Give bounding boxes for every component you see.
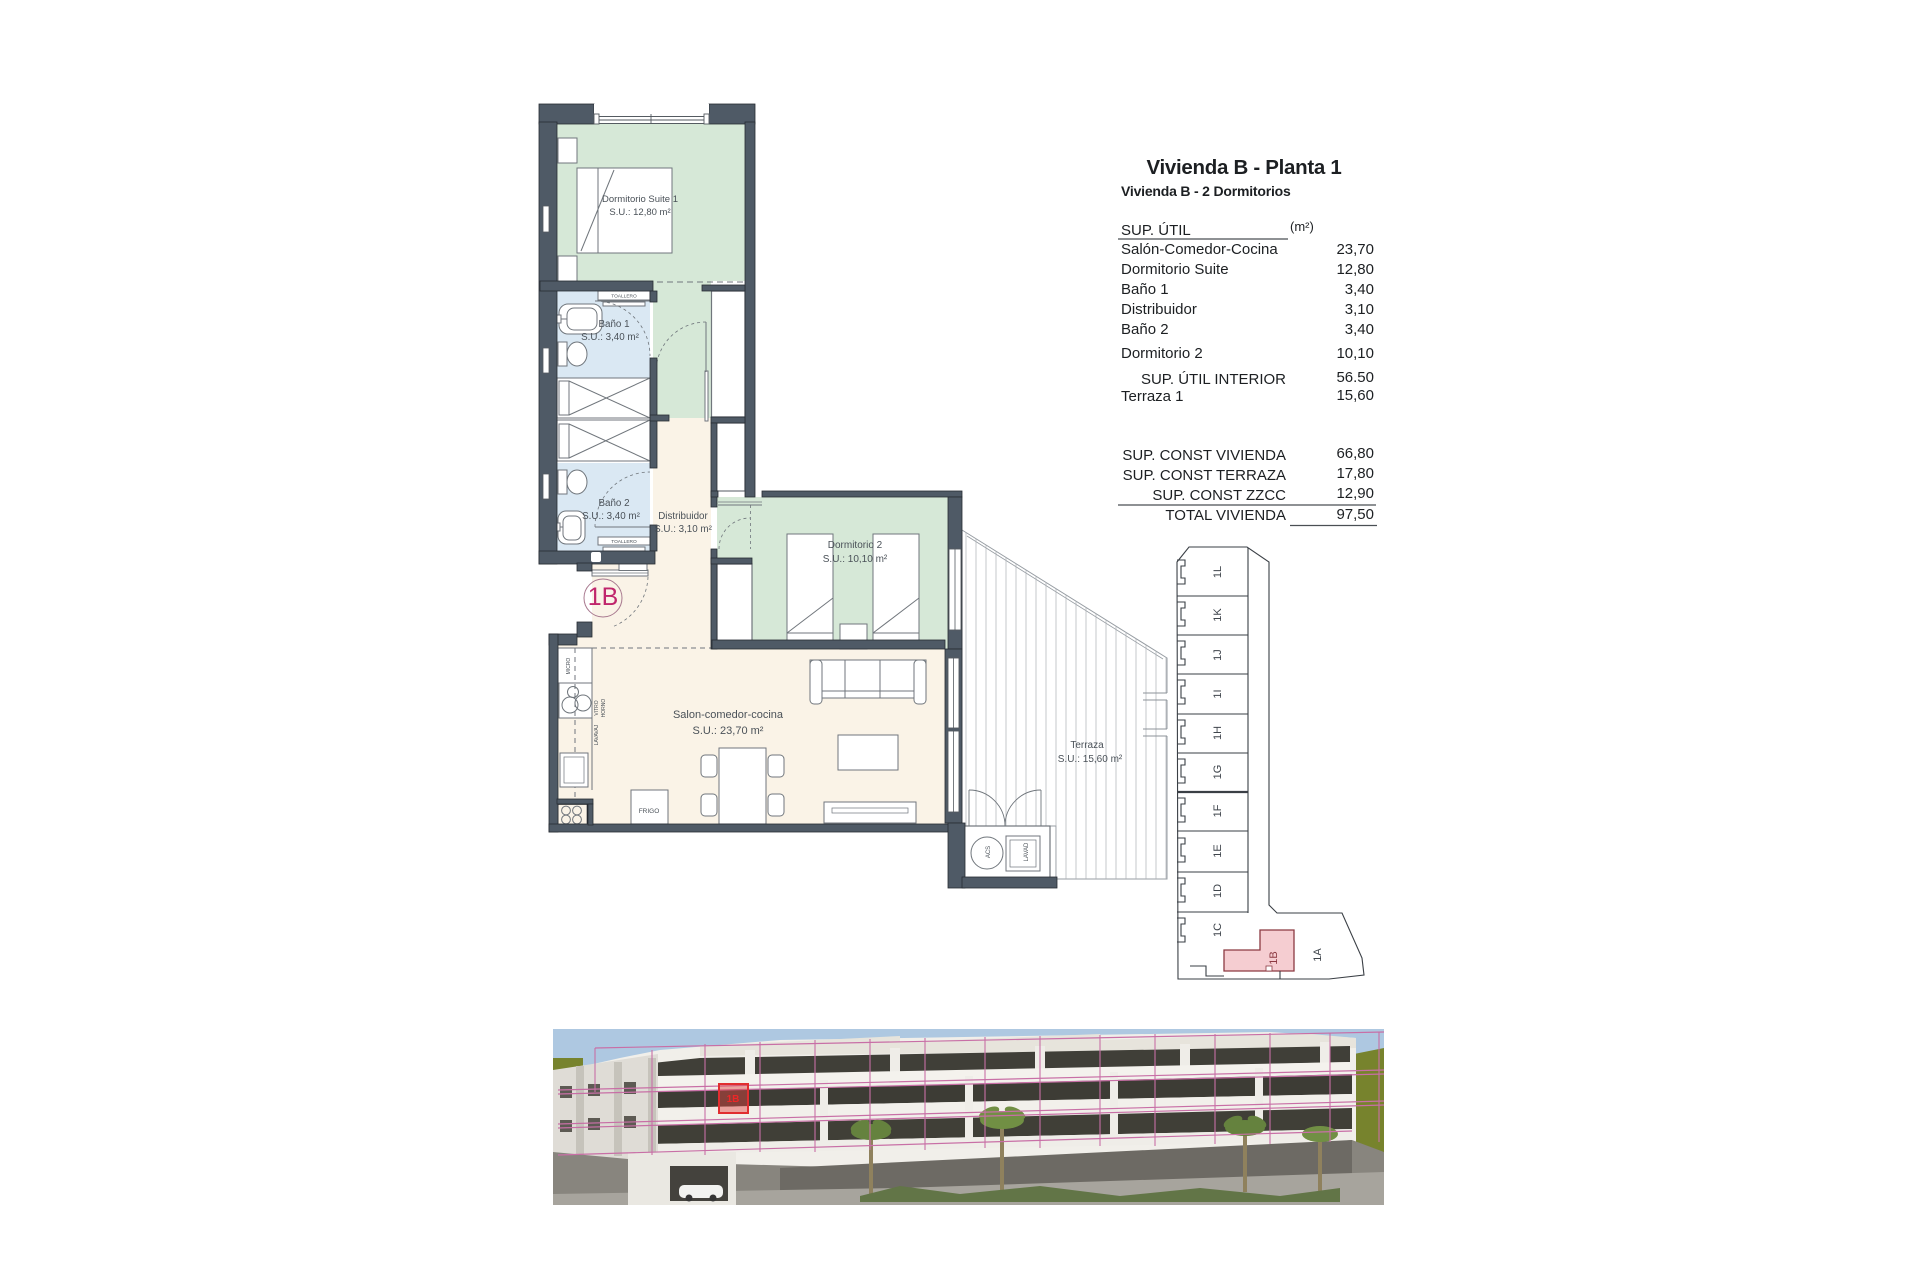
svg-text:Baño 2: Baño 2 [1121, 321, 1169, 338]
svg-text:Dormitorio Suite: Dormitorio Suite [1121, 261, 1229, 278]
svg-text:1L: 1L [1212, 566, 1224, 578]
svg-text:SUP. ÚTIL INTERIOR: SUP. ÚTIL INTERIOR [1141, 371, 1286, 388]
svg-text:1A: 1A [1312, 948, 1324, 962]
svg-text:Terraza: Terraza [1070, 740, 1104, 751]
svg-text:S.U.: 15,60 m²: S.U.: 15,60 m² [1058, 754, 1123, 765]
svg-text:LAVAVAJ: LAVAVAJ [594, 724, 600, 745]
svg-text:Distribuidor: Distribuidor [658, 511, 708, 522]
svg-text:HORNO: HORNO [601, 699, 607, 718]
svg-text:10,10: 10,10 [1336, 345, 1374, 362]
svg-text:1E: 1E [1212, 844, 1224, 857]
svg-text:VITRO: VITRO [594, 700, 600, 715]
svg-text:66,80: 66,80 [1336, 445, 1374, 462]
svg-text:Distribuidor: Distribuidor [1121, 301, 1197, 318]
svg-text:S.U.: 23,70 m²: S.U.: 23,70 m² [693, 725, 764, 737]
svg-text:Vivienda B - 2 Dormitorios: Vivienda B - 2 Dormitorios [1121, 183, 1291, 199]
svg-text:Terraza 1: Terraza 1 [1121, 388, 1184, 405]
svg-text:Salon-comedor-cocina: Salon-comedor-cocina [673, 709, 784, 721]
svg-text:3,40: 3,40 [1345, 321, 1374, 338]
svg-text:23,70: 23,70 [1336, 241, 1374, 258]
svg-text:Salón-Comedor-Cocina: Salón-Comedor-Cocina [1121, 241, 1278, 258]
svg-text:1K: 1K [1212, 608, 1224, 622]
svg-text:LAVAD: LAVAD [1024, 842, 1030, 861]
svg-text:(m²): (m²) [1290, 219, 1314, 234]
svg-text:TOALLERO: TOALLERO [611, 539, 637, 545]
svg-text:SUP. CONST TERRAZA: SUP. CONST TERRAZA [1123, 467, 1286, 484]
svg-text:S.U.: 3,40 m²: S.U.: 3,40 m² [582, 511, 640, 522]
svg-text:ACS: ACS [986, 846, 992, 858]
svg-text:12,90: 12,90 [1336, 485, 1374, 502]
svg-text:Dormitorio 2: Dormitorio 2 [828, 540, 883, 551]
svg-text:3,40: 3,40 [1345, 281, 1374, 298]
svg-text:FRIGO: FRIGO [639, 808, 660, 815]
svg-text:SUP. CONST VIVIENDA: SUP. CONST VIVIENDA [1122, 447, 1286, 464]
svg-text:1C: 1C [1212, 923, 1224, 937]
svg-text:17,80: 17,80 [1336, 465, 1374, 482]
svg-text:Dormitorio 2: Dormitorio 2 [1121, 345, 1203, 362]
svg-text:S.U.: 12,80 m²: S.U.: 12,80 m² [609, 207, 670, 218]
svg-text:SUP. ÚTIL: SUP. ÚTIL [1121, 222, 1191, 239]
svg-text:1B: 1B [1268, 951, 1280, 964]
svg-text:S.U.: 3,40 m²: S.U.: 3,40 m² [581, 332, 639, 343]
svg-text:1F: 1F [1212, 804, 1224, 817]
svg-text:1D: 1D [1212, 884, 1224, 898]
svg-text:56.50: 56.50 [1336, 369, 1374, 386]
svg-text:MICRO: MICRO [566, 658, 572, 675]
svg-text:1B: 1B [588, 583, 619, 611]
svg-text:Dormitorio Suite 1: Dormitorio Suite 1 [602, 194, 678, 205]
svg-text:15,60: 15,60 [1336, 387, 1374, 404]
svg-text:SUP. CONST ZZCC: SUP. CONST ZZCC [1152, 487, 1286, 504]
svg-text:S.U.: 10,10 m²: S.U.: 10,10 m² [823, 554, 888, 565]
svg-text:Baño 2: Baño 2 [598, 498, 629, 509]
svg-text:1J: 1J [1212, 649, 1224, 661]
svg-text:Baño 1: Baño 1 [598, 319, 629, 330]
svg-text:12,80: 12,80 [1336, 261, 1374, 278]
svg-text:TOALLERO: TOALLERO [611, 294, 637, 300]
svg-text:Baño 1: Baño 1 [1121, 281, 1169, 298]
svg-text:1H: 1H [1212, 726, 1224, 740]
svg-text:97,50: 97,50 [1336, 506, 1374, 523]
svg-text:1I: 1I [1212, 689, 1224, 698]
svg-text:Vivienda B - Planta 1: Vivienda B - Planta 1 [1147, 156, 1342, 179]
svg-text:1G: 1G [1212, 765, 1224, 780]
svg-text:TOTAL VIVIENDA: TOTAL VIVIENDA [1165, 507, 1286, 524]
svg-text:S.U.: 3,10 m²: S.U.: 3,10 m² [654, 524, 712, 535]
svg-text:3,10: 3,10 [1345, 301, 1374, 318]
